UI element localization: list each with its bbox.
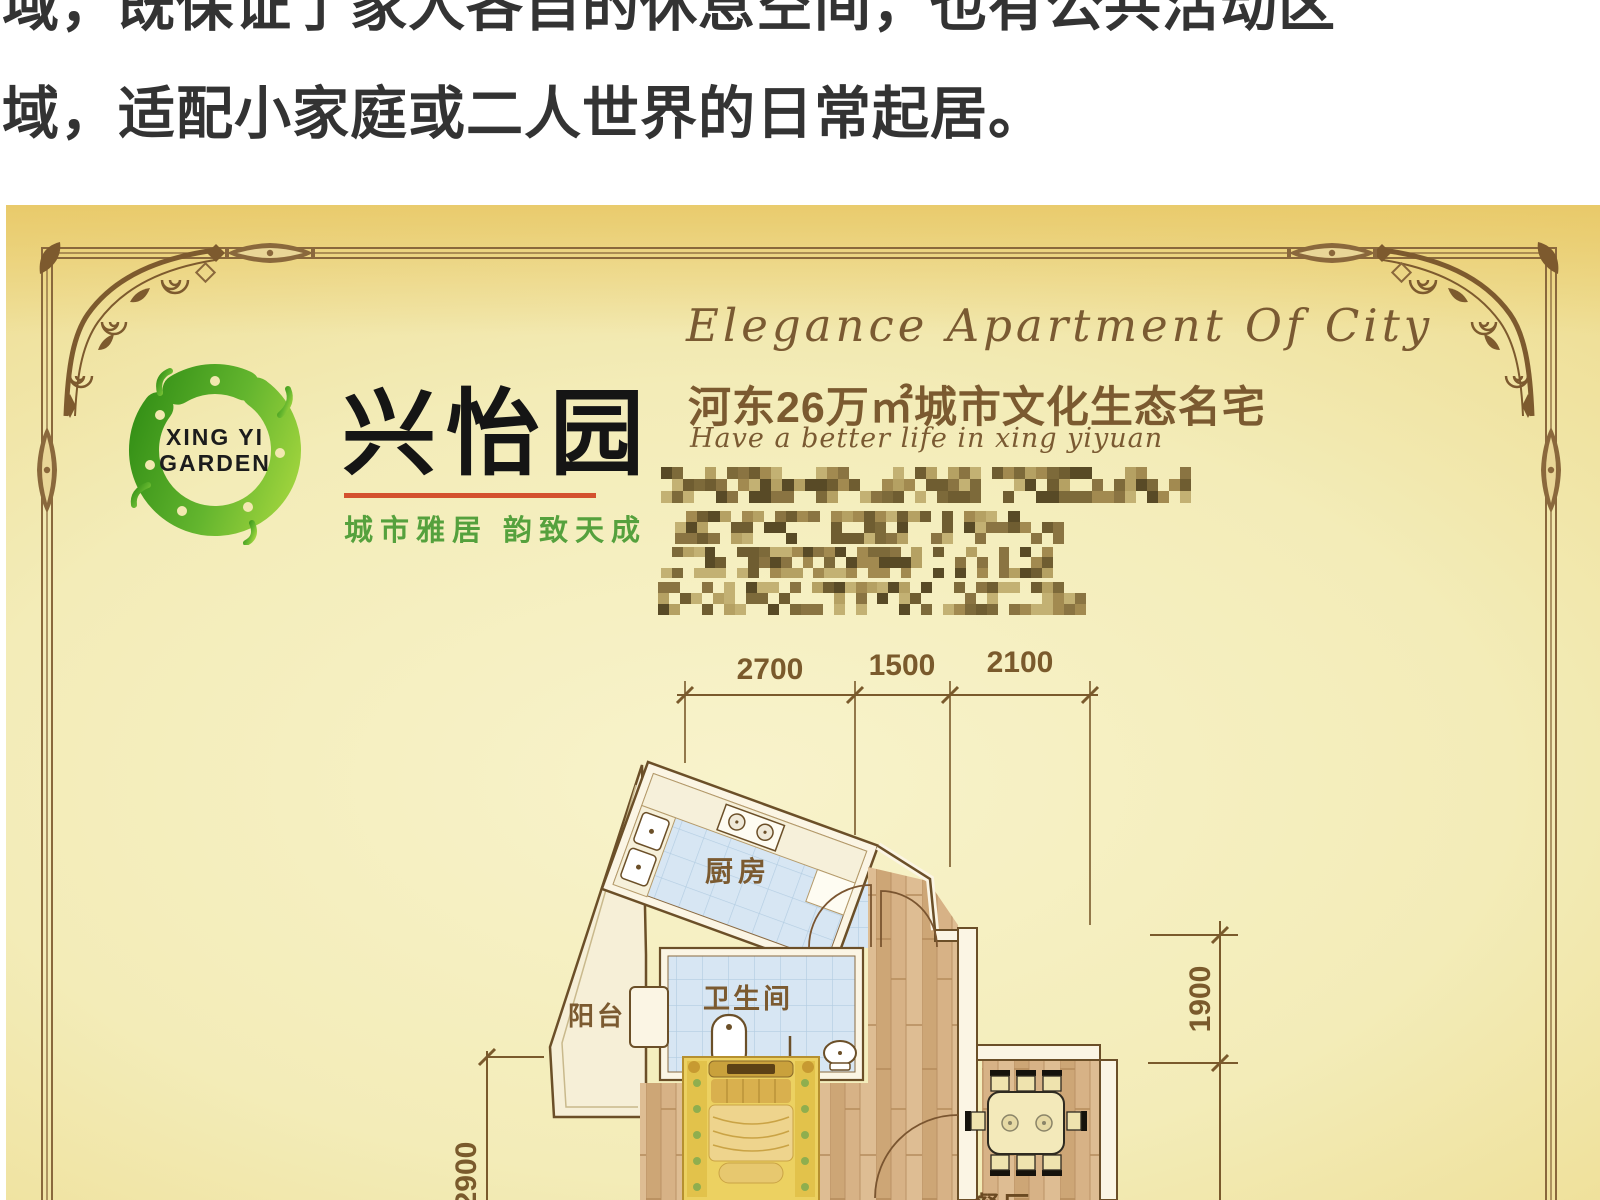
contact-redacted-line (661, 547, 1053, 578)
floor-plan: 厨房 卫生间 阳台 餐厅 2700 1500 2100 1900 2900 (416, 615, 1346, 1200)
bed (683, 1057, 819, 1200)
logo-underline (344, 493, 596, 498)
intro-text-line2: 域，适配小家庭或二人世界的日常起居。 (2, 80, 1600, 148)
property-poster: XING YI GARDEN 兴怡园 城市雅居 韵致天成 Elegance Ap… (6, 205, 1600, 1200)
contact-redacted-line (661, 467, 1191, 503)
dim-left: 2900 (450, 1142, 483, 1200)
logo-badge-bottom: GARDEN (159, 450, 271, 476)
tagline-english: Have a better life in xing yiyuan (690, 423, 1163, 454)
dining-label: 餐厅 (974, 1191, 1032, 1200)
logo-name: 兴怡园 (342, 387, 654, 481)
logo-badge-top: XING YI (166, 424, 264, 450)
contact-redacted-line (664, 511, 1064, 544)
border-finial-icon (225, 240, 315, 266)
logo-slogan: 城市雅居 韵致天成 (344, 507, 647, 549)
border-finial-icon (1287, 240, 1377, 266)
kitchen-label: 厨房 (705, 855, 771, 887)
contact-redacted-line (658, 582, 1086, 615)
intro-text-line1: 域，既保证了家人各自的休息空间，也有公共活动区 (2, 0, 1600, 40)
headline-english: Elegance Apartment Of City (686, 299, 1433, 352)
border-finial-icon (1538, 425, 1564, 515)
balcony-door (630, 987, 668, 1047)
garden-logo-icon: XING YI GARDEN (120, 355, 310, 545)
dim-top-3: 2100 (987, 646, 1054, 679)
dim-top-2: 1500 (869, 649, 936, 682)
balcony-label: 阳台 (568, 1001, 626, 1031)
bathroom-label: 卫生间 (703, 984, 793, 1014)
border-finial-icon (34, 425, 60, 515)
dim-right: 1900 (1184, 966, 1217, 1033)
dim-top-1: 2700 (737, 653, 804, 686)
